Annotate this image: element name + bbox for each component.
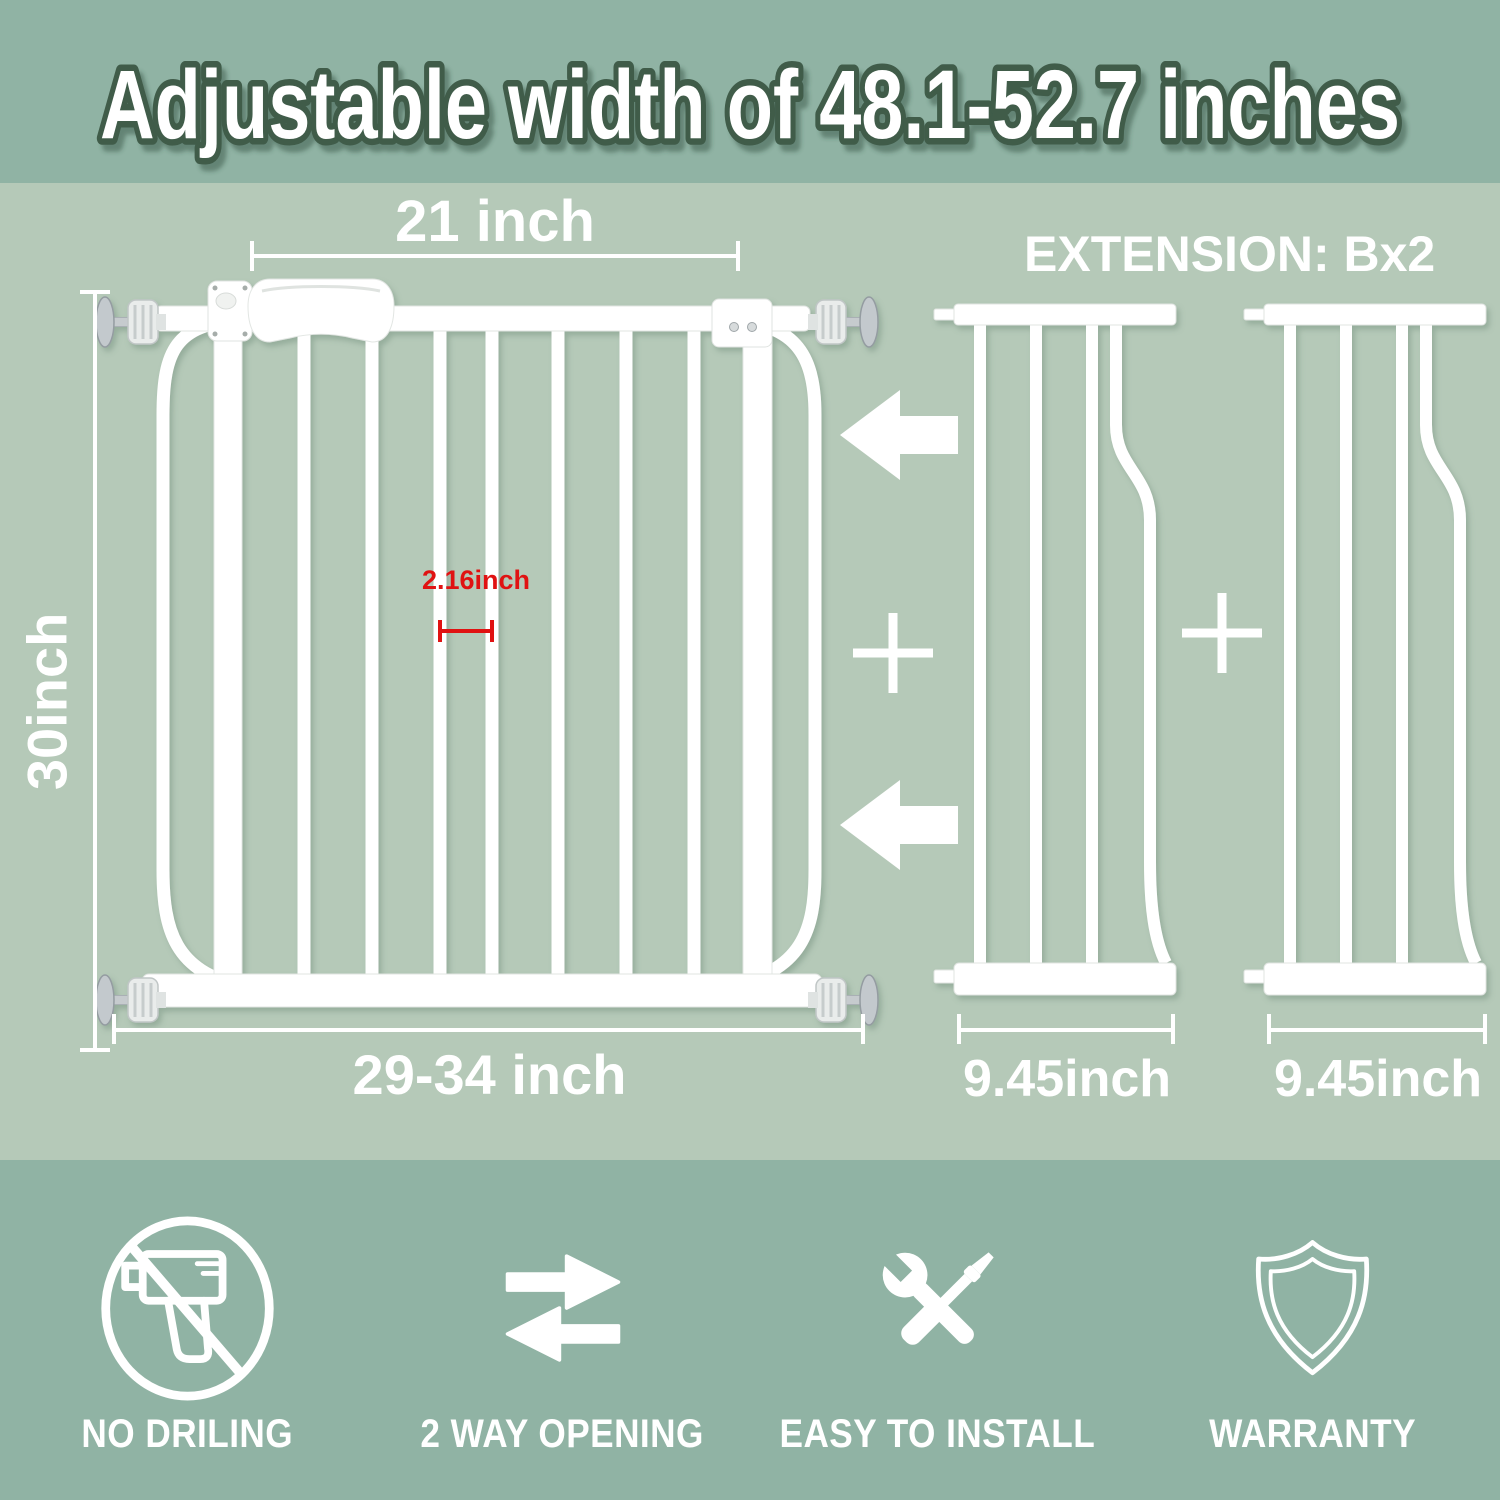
dimension-tick — [250, 241, 254, 271]
feature-warranty: WARRANTY — [1125, 1160, 1500, 1500]
diagram-panel — [0, 183, 1500, 1160]
dimension-tick — [112, 1014, 116, 1044]
dimension-line — [252, 254, 738, 258]
easy-to-install-icon — [853, 1223, 1023, 1393]
dimension-line — [93, 292, 97, 1050]
dim-label-extension-a: 9.45inch — [929, 1052, 1205, 1107]
dim-label-bottom-width: 29-34 inch — [114, 1046, 865, 1105]
feature-easy-to-install: EASY TO INSTALL — [750, 1160, 1125, 1500]
feature-no-drilling: NO DRILING — [0, 1160, 375, 1500]
dimension-line — [959, 1028, 1175, 1032]
dim-label-extension-b: 9.45inch — [1239, 1052, 1500, 1107]
feature-label: EASY TO INSTALL — [780, 1412, 1096, 1457]
page-title: Adjustable width of 48.1-52.7 inches — [100, 50, 1400, 159]
feature-two-way-opening: 2 WAY OPENING — [375, 1160, 750, 1500]
dim-label-height: 30inch — [19, 561, 78, 841]
dimension-tick — [1483, 1014, 1487, 1044]
dimension-tick — [861, 1014, 865, 1044]
dimension-tick — [1171, 1014, 1175, 1044]
gap-dimension-tick — [438, 620, 442, 642]
dimension-tick — [80, 1048, 110, 1052]
feature-label: NO DRILING — [82, 1412, 294, 1457]
gap-dimension-tick — [490, 620, 494, 642]
headline: Adjustable width of 48.1-52.7 inches — [0, 0, 1500, 183]
dim-label-top-width: 21 inch — [252, 192, 738, 253]
two-way-opening-icon — [478, 1223, 648, 1393]
extension-caption: EXTENSION: Bx2 — [1024, 228, 1424, 281]
dimension-tick — [1267, 1014, 1271, 1044]
feature-label: WARRANTY — [1209, 1412, 1416, 1457]
warranty-icon — [1230, 1226, 1395, 1391]
dimension-tick — [80, 290, 110, 294]
dimension-line — [1269, 1028, 1487, 1032]
product-infographic: Adjustable width of 48.1-52.7 inches — [0, 0, 1500, 1500]
no-drilling-icon — [95, 1216, 280, 1401]
gap-dimension-line — [442, 629, 492, 633]
dim-label-bar-gap: 2.16inch — [400, 566, 552, 594]
features-row: NO DRILING 2 WAY OPENING — [0, 1160, 1500, 1500]
dimension-tick — [957, 1014, 961, 1044]
dimension-line — [114, 1028, 865, 1032]
feature-label: 2 WAY OPENING — [421, 1412, 705, 1457]
dimension-tick — [736, 241, 740, 271]
wrench-icon — [866, 1237, 986, 1357]
